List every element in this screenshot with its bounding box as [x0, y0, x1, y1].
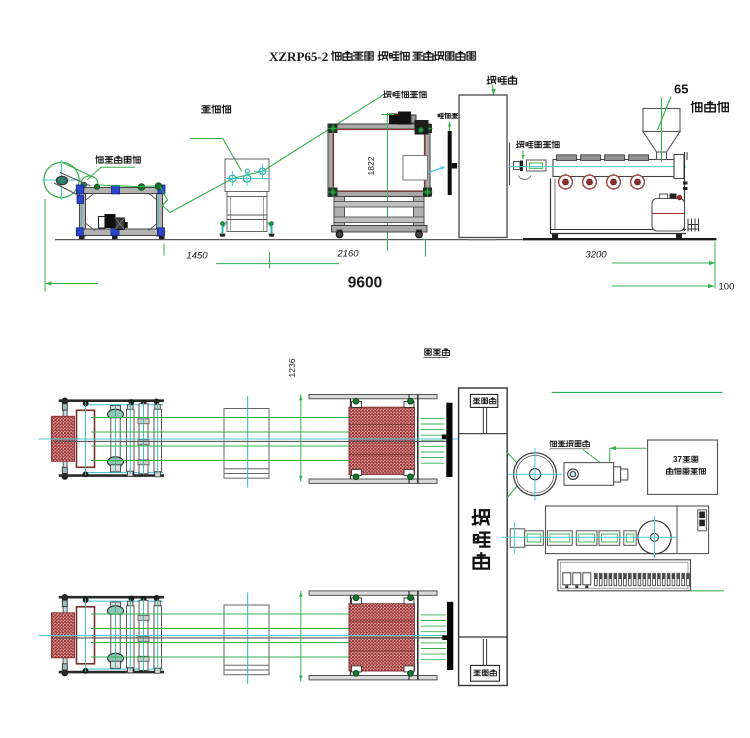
svg-text:1236: 1236 — [287, 358, 297, 377]
svg-text:3200: 3200 — [585, 250, 607, 261]
svg-text:XZRP65-2: XZRP65-2 — [269, 49, 328, 64]
svg-text:65: 65 — [674, 82, 688, 97]
svg-text:1450: 1450 — [186, 251, 208, 262]
svg-text:9600: 9600 — [348, 275, 382, 292]
svg-text:1822: 1822 — [366, 156, 376, 175]
svg-text:37: 37 — [673, 455, 682, 464]
svg-text:100: 100 — [719, 282, 735, 293]
svg-text:2160: 2160 — [336, 249, 359, 260]
